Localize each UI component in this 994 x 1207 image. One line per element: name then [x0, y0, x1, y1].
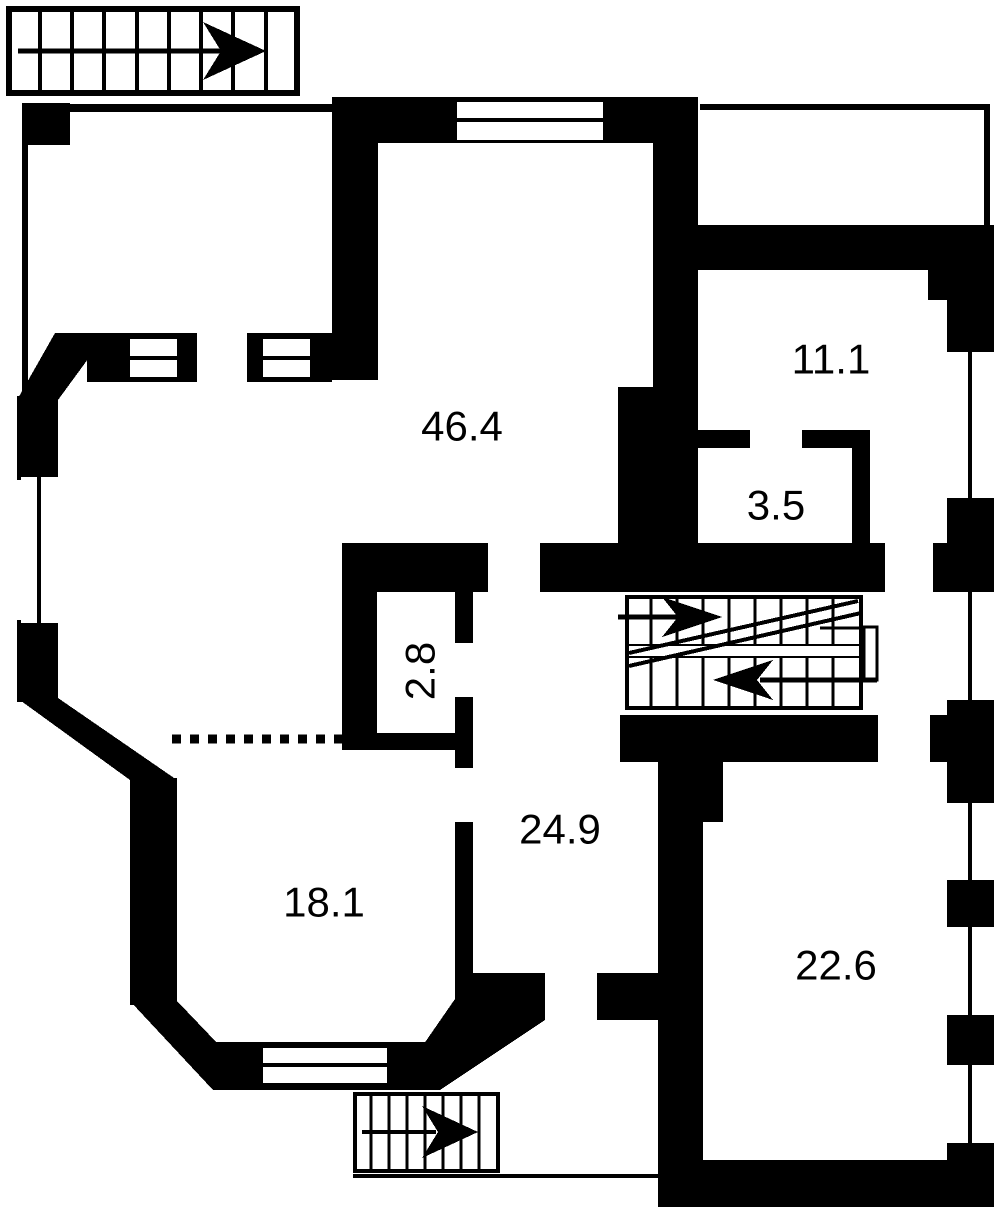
porch-edge-line	[22, 112, 28, 392]
window-right-3	[951, 803, 991, 880]
wall-segment	[928, 270, 947, 300]
stair-outline	[627, 597, 861, 708]
room-label-24-9: 24.9	[519, 806, 601, 853]
wall-segment	[653, 225, 994, 270]
wall-segment	[540, 543, 885, 592]
wall-segment	[455, 592, 473, 643]
window-right-2	[951, 592, 991, 700]
wall-segment	[342, 543, 488, 592]
wall-segment	[455, 822, 473, 1020]
window-right-1	[951, 352, 991, 498]
stair-base-line	[353, 1174, 658, 1178]
window-upper-left-1	[130, 339, 177, 377]
wall-segment	[342, 733, 473, 750]
wall-segment	[947, 1015, 994, 1065]
terrace-outline	[700, 104, 990, 225]
wall-segment	[802, 430, 870, 448]
wall-segment	[597, 973, 658, 1020]
terrace-edge-line	[984, 104, 990, 225]
wall-segment	[332, 97, 378, 380]
wall-segment	[947, 880, 994, 927]
wall-segment	[455, 697, 473, 768]
stair-central	[618, 596, 877, 709]
window-upper-left-2	[263, 339, 310, 377]
room-label-18-1: 18.1	[283, 879, 365, 926]
room-label-22-6: 22.6	[795, 942, 877, 989]
stair-landing	[864, 627, 877, 680]
window-right-5	[951, 1065, 991, 1143]
wall-segment	[698, 430, 750, 448]
porch-column	[22, 103, 70, 145]
room-label-11-1: 11.1	[792, 336, 871, 383]
wall-segment	[17, 396, 58, 480]
window-left	[21, 477, 58, 623]
wall-segment	[852, 448, 870, 547]
stair-top-left	[9, 6, 297, 96]
wall-segment	[947, 1143, 994, 1207]
floor-plan: 46.4 11.1 3.5 2.8 24.9 18.1 22.6	[0, 0, 994, 1207]
wall-segment	[653, 270, 698, 390]
stair-bottom	[353, 1092, 658, 1178]
wall-segment	[658, 760, 703, 1160]
wall-segment	[658, 1160, 947, 1207]
wall-chamfer	[17, 698, 177, 780]
room-label-3-5: 3.5	[747, 482, 805, 529]
wall-segment	[703, 752, 723, 822]
wall-segment	[933, 543, 994, 592]
wall-segment	[947, 270, 994, 352]
room-label-2-8: 2.8	[397, 642, 444, 700]
window-bottom	[263, 1048, 387, 1083]
wall-segment	[342, 592, 377, 750]
wall-segment	[620, 715, 878, 762]
window-top	[457, 102, 603, 140]
wall-segment	[618, 387, 698, 592]
wall-segment	[130, 778, 177, 1005]
window-right-4	[951, 927, 991, 1015]
wall-segment	[947, 700, 994, 803]
wall-segment	[930, 715, 947, 762]
wall-segment	[17, 620, 58, 702]
room-label-46-4: 46.4	[421, 403, 503, 450]
floor-plan-page: 46.4 11.1 3.5 2.8 24.9 18.1 22.6	[0, 0, 994, 1207]
terrace-edge-line	[700, 104, 990, 110]
